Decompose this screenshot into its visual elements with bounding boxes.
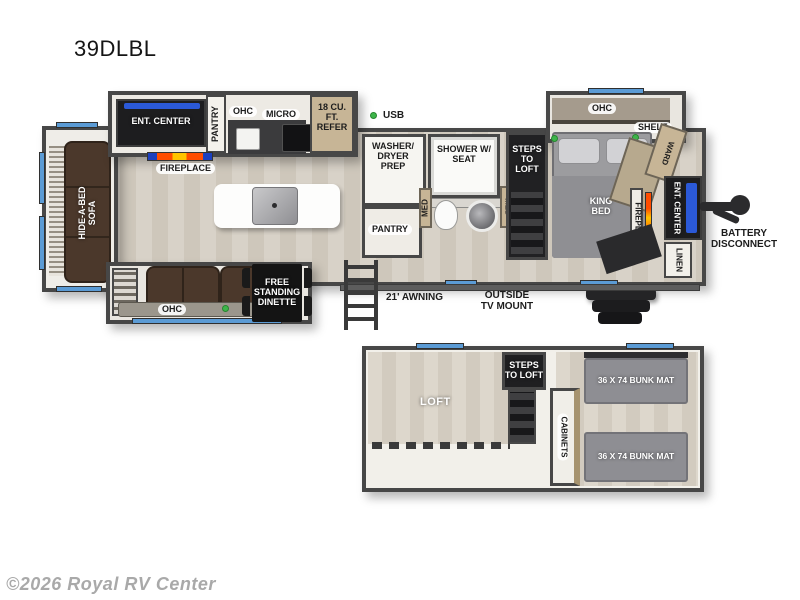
usb-led [370,112,377,119]
bedroom-ent-center-label: ENT. CENTER [672,182,681,234]
awning-label: 21' AWNING [386,292,443,303]
washer-dryer-label: WASHER/ DRYER PREP [364,138,422,176]
cabinets-label: CABINETS [558,414,569,461]
led-light [551,135,558,142]
window [39,216,45,270]
window [39,152,45,204]
hitch-coupler [730,195,750,215]
window [416,343,464,349]
dinette-chair [304,268,312,288]
steps-main-treads [511,192,543,254]
pantry-label: PANTRY [211,106,221,142]
page-title: 39DLBL [74,36,157,62]
med-left-label: MED [422,199,431,217]
bunk-mat-top-label: 36 X 74 BUNK MAT [586,360,686,402]
window [626,343,674,349]
dinette-chair [242,296,250,316]
sofa-blinds [49,146,65,276]
steps-main-label: STEPS TO LOFT [508,140,546,180]
loft-label: LOFT [420,396,451,408]
theater-ohc-label: OHC [158,304,186,315]
window [588,88,644,94]
refer-label: 18 CU. FT. REFER [311,98,353,138]
usb-label: USB [383,110,404,121]
bedroom-ohc-label: OHC [588,103,616,114]
pillow [558,138,600,164]
toilet [434,200,458,230]
outside-tv-mount-label: OUTSIDE TV MOUNT [478,290,536,312]
tv-screen [686,183,697,233]
hide-a-bed-sofa-label: HIDE-A-BED SOFA [78,181,98,245]
loft-railing [372,442,510,449]
seat-seam [182,268,184,304]
battery-disconnect-label: BATTERY DISCONNECT [706,228,782,250]
entry-steps [598,312,642,324]
window [56,122,98,128]
bunk-mat-bottom-label: 36 X 74 BUNK MAT [586,434,686,480]
entry-steps [592,300,650,312]
shower-label: SHOWER W/ SEAT [432,140,496,170]
dinette-chair [242,268,250,288]
steps-loft-label: STEPS TO LOFT [504,354,544,388]
tv-screen [124,103,200,109]
bedroom-ent-center [664,176,702,240]
window [56,286,102,292]
dinette-label: FREE STANDING DINETTE [253,268,301,318]
bath-sink [466,200,498,232]
dinette-chair [304,296,312,316]
fireplace-label: FIREPLACE [156,163,215,174]
ohc-label: OHC [229,106,257,117]
ent-center-label: ENT. CENTER [118,112,204,132]
rear-ladder [344,260,378,330]
micro-label: MICRO [262,109,300,120]
floorplan-canvas: 39DLBL HIDE-A-BED SOFA ENT. CENTER PANTR… [0,0,800,600]
bath-pantry-label: PANTRY [368,224,412,235]
led-light [222,305,229,312]
watermark: ©2026 Royal RV Center [6,574,216,595]
island-faucet [272,203,277,208]
kitchen-sink [236,128,260,150]
steps-loft-treads [508,390,536,444]
linen-label: LINEN [674,248,683,272]
fireplace-strip [147,152,213,161]
